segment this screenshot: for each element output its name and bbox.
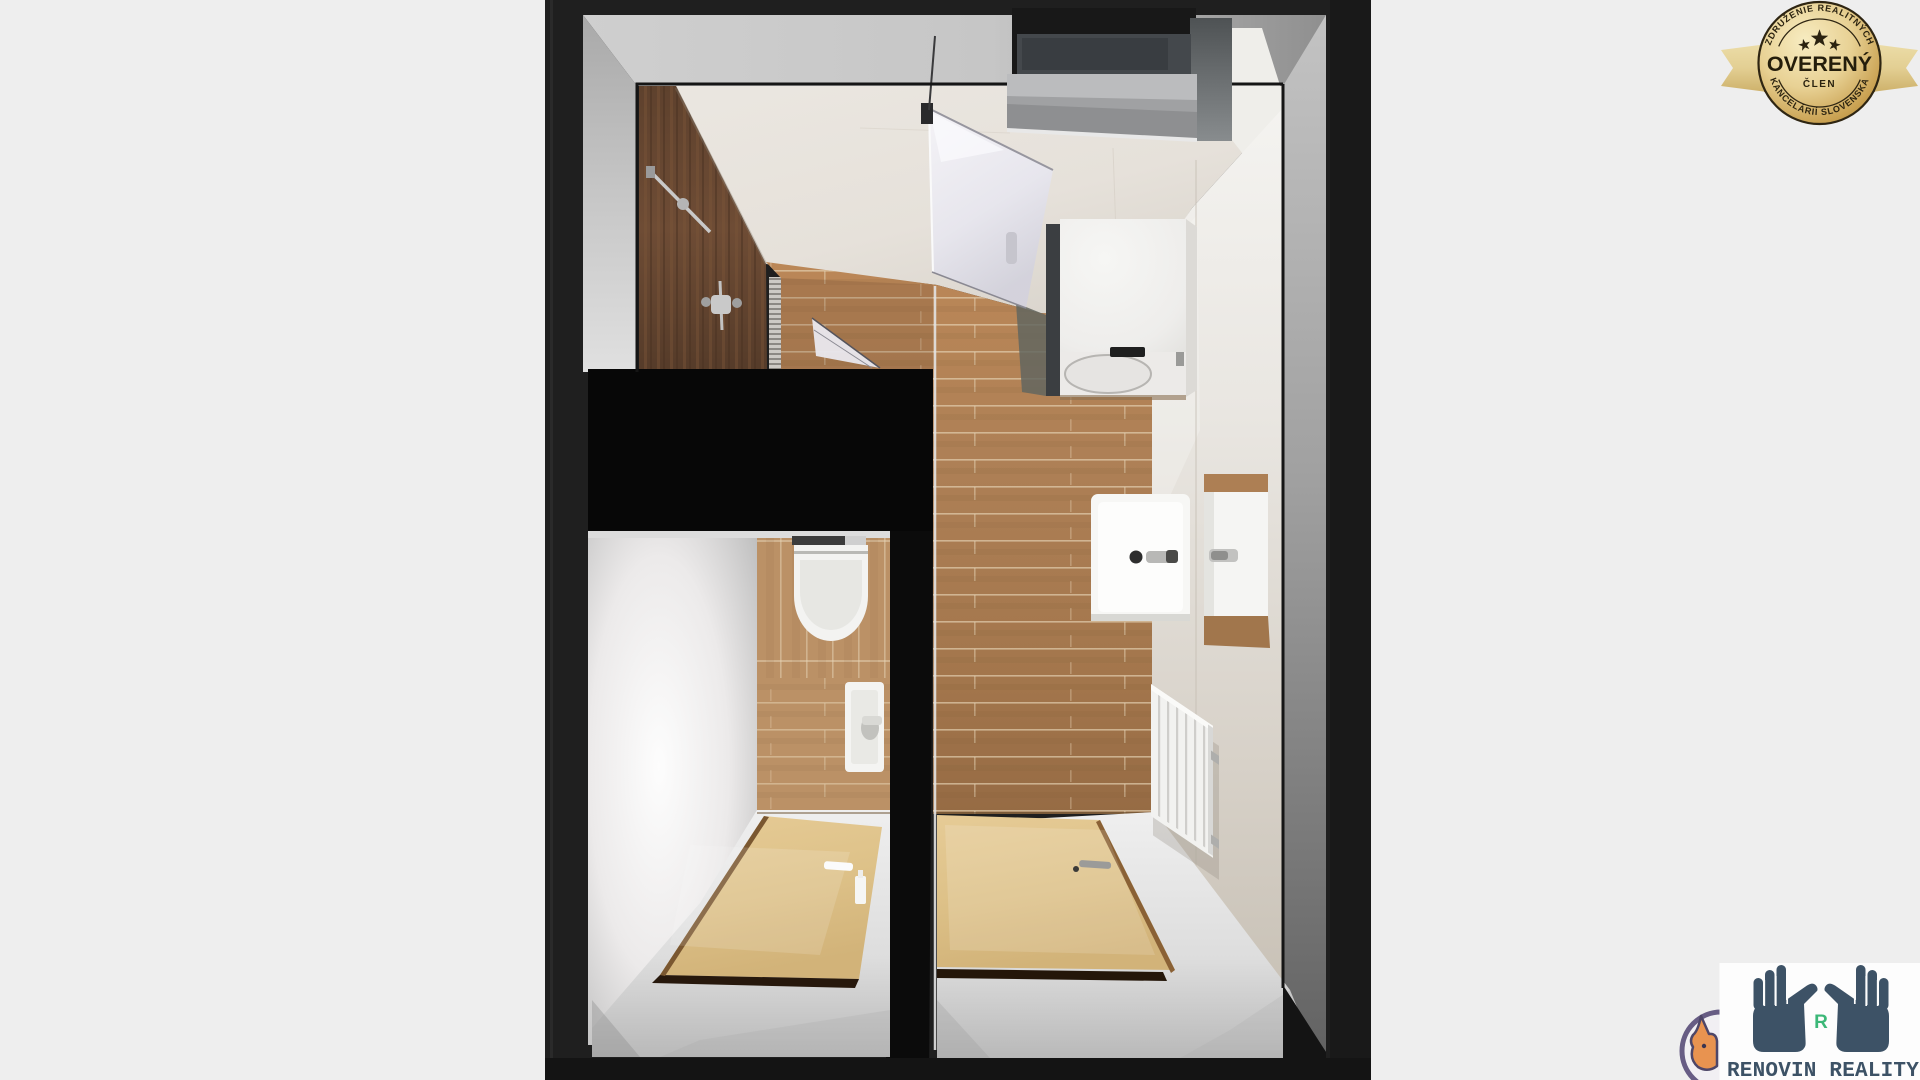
svg-text:RENOVIN REALITY: RENOVIN REALITY <box>1727 1060 1919 1080</box>
svg-text:ČLEN: ČLEN <box>1803 77 1836 90</box>
svg-text:R: R <box>1814 1012 1828 1033</box>
svg-text:OVERENÝ: OVERENÝ <box>1767 51 1872 76</box>
